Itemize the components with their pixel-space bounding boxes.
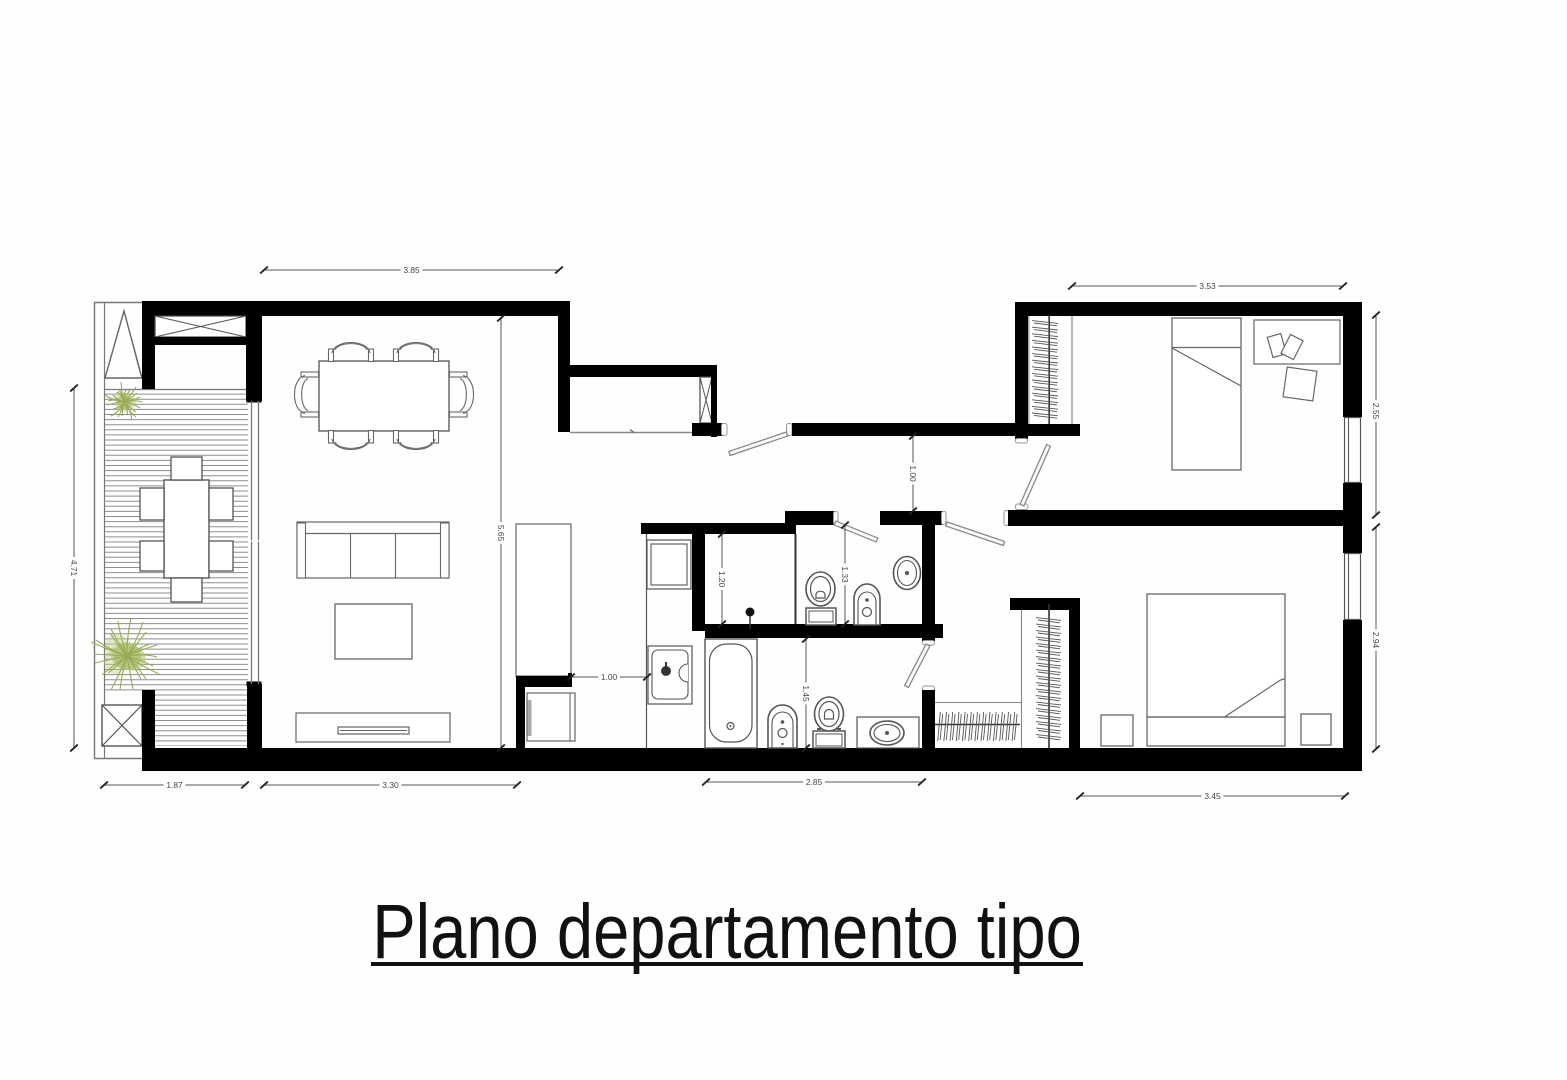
- svg-text:5.65: 5.65: [496, 525, 506, 542]
- svg-text:1.00: 1.00: [908, 465, 918, 482]
- svg-text:1.45: 1.45: [801, 685, 811, 702]
- svg-text:4.71: 4.71: [69, 560, 79, 577]
- svg-text:3.53: 3.53: [1199, 281, 1216, 291]
- svg-text:1.00: 1.00: [601, 672, 618, 682]
- svg-text:3.30: 3.30: [382, 780, 399, 790]
- svg-text:1.33: 1.33: [840, 566, 850, 583]
- svg-text:3.85: 3.85: [403, 265, 420, 275]
- svg-text:1.87: 1.87: [166, 780, 183, 790]
- svg-text:2.55: 2.55: [1371, 403, 1381, 420]
- svg-text:1.20: 1.20: [717, 571, 727, 588]
- svg-text:3.45: 3.45: [1204, 791, 1221, 801]
- svg-text:2.94: 2.94: [1371, 632, 1381, 649]
- svg-text:2.85: 2.85: [806, 777, 823, 787]
